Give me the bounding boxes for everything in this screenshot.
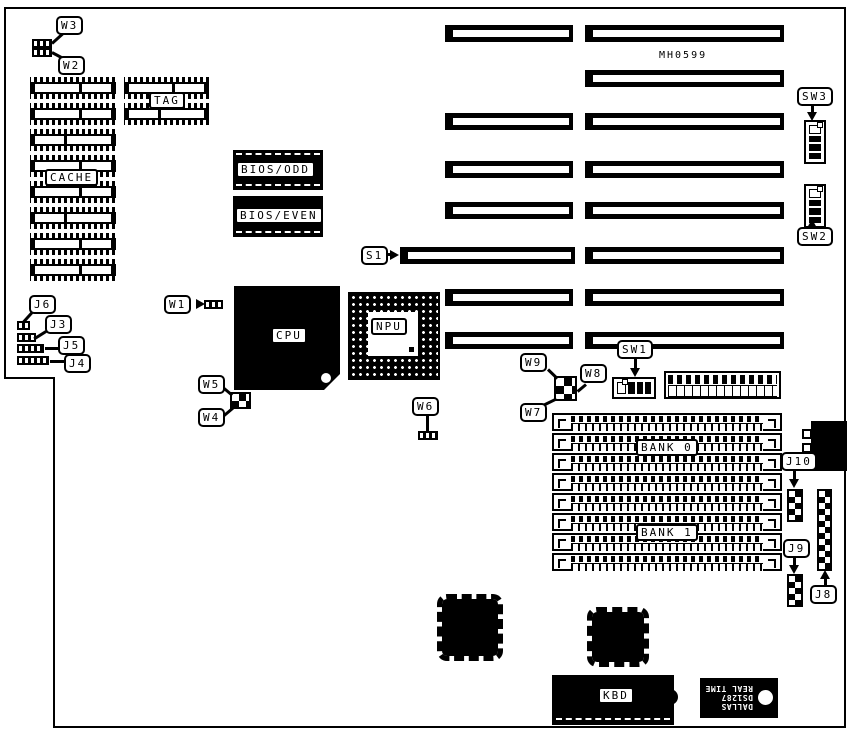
callout-arrow-j10 <box>789 479 799 488</box>
expansion-slot <box>445 202 573 219</box>
callout-sw3: SW3 <box>797 87 833 106</box>
tag-label: TAG <box>149 92 185 109</box>
dip-switch-sw1 <box>612 377 656 399</box>
expansion-slot <box>585 332 784 349</box>
connector-pin-stub <box>802 429 812 439</box>
rtc-brand: DALLAS <box>705 703 753 712</box>
callout-sw2: SW2 <box>797 227 833 246</box>
callout-j9: J9 <box>783 539 810 558</box>
npu-label: NPU <box>371 318 407 335</box>
cpu-label: CPU <box>271 327 307 344</box>
dip-switch-sw3 <box>804 120 826 164</box>
rtc-type: REAL TIME <box>705 685 753 694</box>
expansion-slot <box>585 161 784 178</box>
expansion-slot <box>585 289 784 306</box>
cache-chip <box>30 233 116 255</box>
callout-arrow-j9 <box>789 565 799 574</box>
header-j10 <box>787 489 803 522</box>
callout-w6: W6 <box>412 397 439 416</box>
expansion-slot <box>445 332 573 349</box>
cache-chip <box>30 259 116 281</box>
expansion-slot <box>445 25 573 42</box>
jumper-j4 <box>17 356 49 365</box>
callout-w8: W8 <box>580 364 607 383</box>
bios-odd-label: BIOS/ODD <box>236 161 315 178</box>
expansion-slot <box>445 113 573 130</box>
callout-j10: J10 <box>781 452 817 471</box>
callout-j6: J6 <box>29 295 56 314</box>
part-number: MH0599 <box>659 50 707 61</box>
callout-w3: W3 <box>56 16 83 35</box>
callout-arrow-sw1 <box>630 368 640 377</box>
callout-j8: J8 <box>810 585 837 604</box>
motherboard-diagram: MH0599 W3 W2 CACHE TAG BIOS/ODD BIOS/EVE… <box>0 0 851 732</box>
jumper-w2 <box>32 48 52 57</box>
header-j8 <box>817 489 832 571</box>
callout-tail-j4 <box>50 360 65 363</box>
callout-j5: J5 <box>58 336 85 355</box>
cache-chip <box>30 103 116 125</box>
expansion-slot <box>585 25 784 42</box>
cache-label: CACHE <box>45 169 98 186</box>
callout-arrow-sw3 <box>807 112 817 121</box>
callout-w2: W2 <box>58 56 85 75</box>
callout-arrow-w1 <box>196 299 205 309</box>
bios-even-label: BIOS/EVEN <box>235 207 323 224</box>
expansion-slot-s1 <box>400 247 575 264</box>
callout-w5: W5 <box>198 375 225 394</box>
expansion-slot <box>585 247 784 264</box>
simm-socket <box>552 413 782 431</box>
expansion-slot <box>585 202 784 219</box>
qfp-chip <box>437 594 503 661</box>
jumper-block-w7-w8-w9 <box>554 376 577 401</box>
callout-w7: W7 <box>520 403 547 422</box>
power-connector <box>664 371 781 399</box>
expansion-slot <box>585 70 784 87</box>
bank0-label: BANK 0 <box>636 439 698 456</box>
cache-chip <box>30 207 116 229</box>
bank1-label: BANK 1 <box>636 524 698 541</box>
npu-socket <box>348 292 440 380</box>
callout-tail-w6 <box>426 415 429 431</box>
jumper-w6 <box>418 431 438 440</box>
dallas-logo <box>758 691 773 706</box>
simm-socket <box>552 553 782 571</box>
header-j9 <box>787 574 803 607</box>
jumper-w3 <box>32 39 52 48</box>
rtc-part: DS1287 <box>705 694 753 703</box>
kbd-label: KBD <box>598 687 634 704</box>
expansion-slot <box>445 161 573 178</box>
cpu-pin1-dot <box>321 373 331 383</box>
simm-socket <box>552 473 782 491</box>
cache-chip <box>30 129 116 151</box>
expansion-slot <box>445 289 573 306</box>
qfp-chip <box>587 607 649 667</box>
npu-pin1-dot <box>409 347 414 352</box>
callout-j4: J4 <box>64 354 91 373</box>
jumper-block-w4-w5 <box>230 392 251 409</box>
callout-arrow-j8 <box>820 570 830 579</box>
callout-j3: J3 <box>45 315 72 334</box>
callout-sw1: SW1 <box>617 340 653 359</box>
simm-socket <box>552 493 782 511</box>
callout-w9: W9 <box>520 353 547 372</box>
cache-chip <box>30 77 116 99</box>
jumper-w1 <box>204 300 223 309</box>
rtc-chip: DALLAS DS1287 REAL TIME <box>700 678 778 718</box>
callout-arrow-s1 <box>390 250 399 260</box>
expansion-slot <box>585 113 784 130</box>
callout-s1: S1 <box>361 246 388 265</box>
callout-w4: W4 <box>198 408 225 427</box>
callout-w1: W1 <box>164 295 191 314</box>
jumper-j5 <box>17 344 44 353</box>
